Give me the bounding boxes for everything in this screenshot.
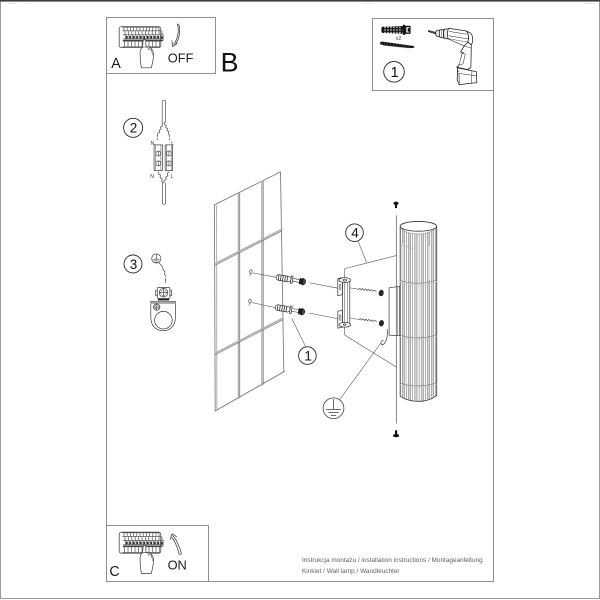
- svg-text:C: C: [109, 564, 119, 580]
- svg-text:A: A: [111, 56, 121, 72]
- svg-text:1: 1: [391, 65, 399, 81]
- svg-text:N: N: [150, 174, 154, 180]
- svg-text:4: 4: [351, 226, 359, 241]
- svg-text:ON: ON: [168, 558, 187, 573]
- svg-text:Instrukcja montażu / installat: Instrukcja montażu / installation instru…: [302, 557, 483, 564]
- svg-text:2: 2: [130, 121, 138, 136]
- svg-text:x2: x2: [396, 36, 402, 42]
- svg-text:L: L: [171, 174, 174, 180]
- svg-text:3: 3: [130, 257, 138, 272]
- svg-text:OFF: OFF: [168, 51, 194, 66]
- svg-text:B: B: [221, 48, 239, 78]
- svg-text:Kinkiet / Wall lamp / Wandleuc: Kinkiet / Wall lamp / Wandleuchter: [302, 568, 400, 575]
- svg-text:1: 1: [304, 349, 312, 364]
